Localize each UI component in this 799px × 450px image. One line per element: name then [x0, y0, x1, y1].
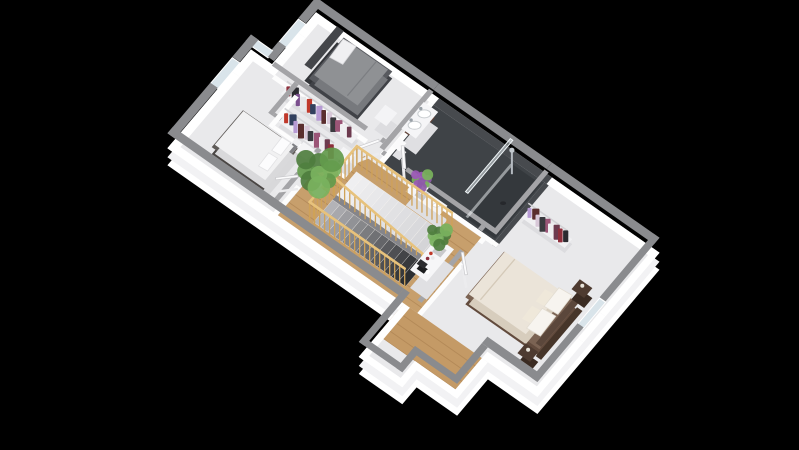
vanity-sink-2 [408, 121, 421, 129]
sideboard-bottle-3 [426, 257, 430, 261]
floorplan-svg [0, 0, 799, 450]
nightstand-lamp-1 [580, 284, 584, 288]
nightstand-lamp-2 [526, 348, 530, 352]
floorplan-viewport [0, 0, 799, 450]
vanity-faucet-1 [419, 107, 422, 110]
vanity-sink-1 [418, 110, 431, 118]
shower-head [509, 148, 514, 153]
sideboard-bottle-2 [431, 256, 435, 260]
sideboard-mug [426, 270, 430, 274]
sideboard-bottle-1 [429, 252, 433, 256]
vanity-faucet-2 [409, 118, 412, 121]
shower-drain [500, 201, 506, 205]
